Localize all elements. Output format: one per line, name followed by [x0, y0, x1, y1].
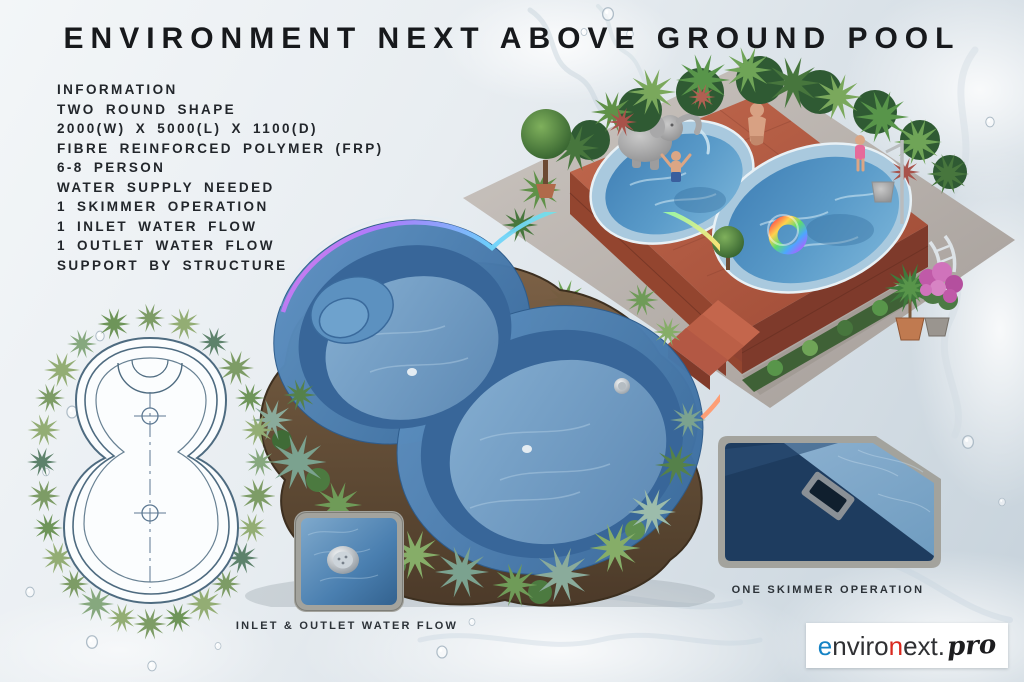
blueprint-drawing: [25, 300, 275, 650]
logo-text-nviro: nviro: [832, 633, 888, 659]
skimmer-caption: ONE SKIMMER OPERATION: [708, 584, 948, 596]
man-figure: [748, 103, 766, 146]
inlet-fitting: [407, 368, 417, 376]
logo-text-pro: pro: [946, 631, 997, 660]
droplet-icon: [437, 646, 447, 658]
skimmer-inset-photo: [718, 436, 941, 568]
chrome-inlet-fitting: [327, 546, 359, 574]
droplet-icon: [603, 8, 614, 21]
pool-plan-outline: [64, 338, 238, 603]
droplet-icon: [148, 661, 156, 671]
inlet-outlet-inset-photo: [294, 511, 404, 612]
info-line: 2000(W) X 5000(L) X 1100(D): [57, 119, 384, 139]
poster-canvas: ENVIRONMENT NEXT ABOVE GROUND POOL INFOR…: [0, 0, 1024, 682]
info-line: FIBRE REINFORCED POLYMER (FRP): [57, 139, 384, 159]
outlet-fitting: [522, 445, 532, 453]
info-line: INFORMATION: [57, 80, 384, 100]
logo-text-ext: ext.: [903, 633, 945, 659]
logo-letter-n: n: [889, 633, 903, 659]
info-line: WATER SUPPLY NEEDED: [57, 178, 384, 198]
droplet-icon: [963, 436, 974, 449]
info-line: 6-8 PERSON: [57, 158, 384, 178]
droplet-icon: [999, 498, 1006, 506]
inlet-outlet-caption: INLET & OUTLET WATER FLOW: [222, 620, 472, 632]
brand-logo: environext.pro: [806, 623, 1008, 668]
chrome-fitting: [614, 378, 630, 394]
logo-letter-e: e: [818, 633, 832, 659]
info-line: TWO ROUND SHAPE: [57, 100, 384, 120]
